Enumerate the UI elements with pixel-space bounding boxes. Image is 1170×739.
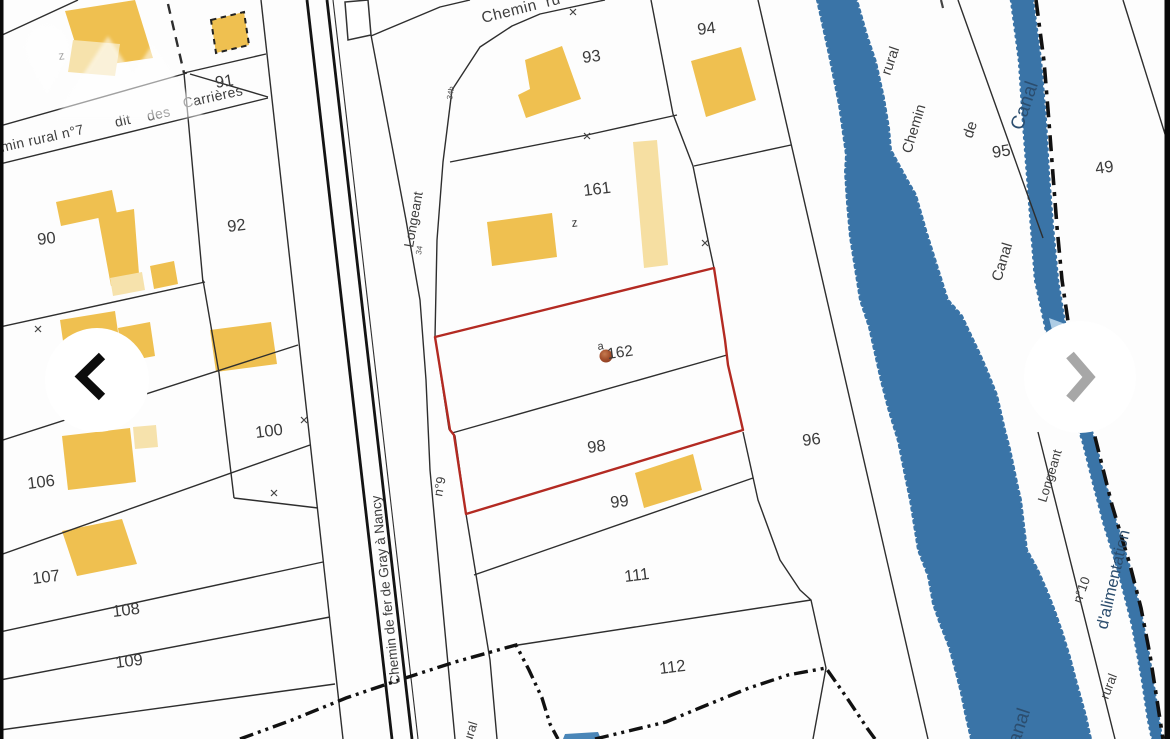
svg-text:107: 107 bbox=[31, 567, 61, 588]
svg-text:92: 92 bbox=[226, 216, 246, 236]
svg-text:112: 112 bbox=[658, 657, 686, 678]
svg-text:162: 162 bbox=[606, 343, 634, 363]
svg-text:96: 96 bbox=[801, 430, 821, 450]
svg-text:94: 94 bbox=[696, 19, 716, 39]
svg-text:108: 108 bbox=[111, 600, 141, 621]
svg-text:93: 93 bbox=[581, 47, 601, 67]
svg-text:111: 111 bbox=[623, 565, 650, 586]
svg-text:99: 99 bbox=[609, 492, 629, 512]
svg-text:109: 109 bbox=[114, 651, 144, 672]
svg-text:95: 95 bbox=[991, 141, 1012, 162]
svg-text:106: 106 bbox=[26, 472, 56, 493]
svg-text:98: 98 bbox=[586, 437, 606, 457]
svg-text:49: 49 bbox=[1094, 158, 1115, 178]
svg-text:90: 90 bbox=[36, 229, 56, 249]
svg-text:161: 161 bbox=[582, 179, 612, 200]
svg-text:100: 100 bbox=[254, 421, 284, 442]
